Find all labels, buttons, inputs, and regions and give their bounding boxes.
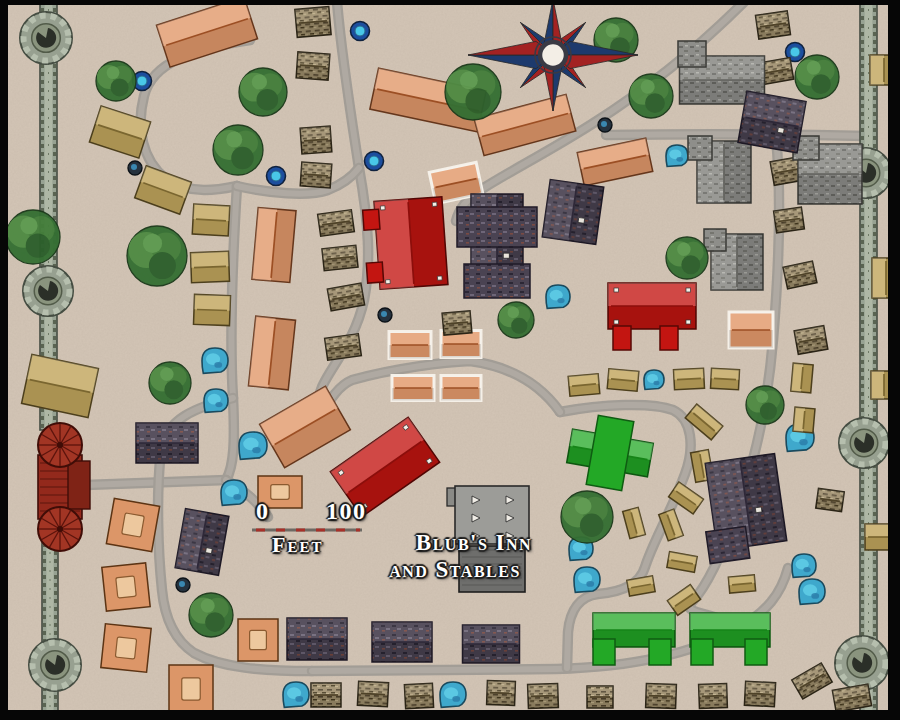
pond-shade: [557, 298, 564, 303]
building-slate: [738, 91, 806, 153]
place-name-line2: and Stables: [348, 558, 562, 581]
tree-highlight: [508, 307, 520, 319]
cistern-water: [381, 311, 387, 317]
roof-shade: [392, 388, 434, 401]
roof-light: [136, 423, 198, 443]
gatehouse-keep: [38, 423, 90, 551]
tree-highlight: [201, 599, 215, 613]
building-thatch: [774, 207, 805, 233]
roof-shade: [729, 330, 773, 348]
wall-tower: [20, 12, 72, 64]
roof-ridge: [490, 693, 512, 694]
tree-highlight: [807, 61, 821, 75]
pond: [202, 348, 228, 373]
pond-shade: [295, 696, 303, 702]
roof-light: [372, 622, 432, 642]
wall-tower: [23, 266, 73, 316]
tree: [666, 237, 708, 279]
pond: [221, 480, 247, 505]
building-thatch: [760, 58, 793, 85]
pond-shade: [215, 402, 222, 407]
tree-highlight: [252, 74, 267, 89]
chimney: [432, 202, 437, 206]
cistern-water: [179, 581, 185, 587]
cistern: [378, 308, 392, 322]
building-thatch: [646, 683, 677, 708]
roof-light: [872, 258, 886, 298]
roof-light: [487, 681, 515, 694]
tree-tuft: [205, 612, 225, 632]
well: [365, 152, 384, 171]
roof-light: [441, 376, 481, 389]
roof-light: [528, 683, 558, 696]
tree-highlight: [641, 80, 655, 94]
building-thatch: [487, 681, 516, 706]
building-barn: [729, 312, 773, 348]
building-tan: [193, 294, 230, 325]
well-water: [137, 76, 147, 86]
building-stone: [704, 229, 763, 290]
pond-shade: [580, 550, 587, 555]
roof-shade: [192, 219, 229, 236]
building-barn: [392, 376, 434, 401]
building-thatch: [296, 52, 330, 80]
tree: [445, 64, 501, 120]
tree-tuft: [111, 78, 129, 96]
tree-tuft: [164, 380, 183, 399]
roof-shade: [724, 141, 751, 203]
tree-tuft: [26, 233, 50, 257]
roof-wing: [678, 41, 706, 67]
pond: [239, 432, 267, 459]
building-tan: [793, 407, 815, 433]
roof-shade: [528, 695, 558, 708]
building-thatch: [816, 488, 845, 511]
scale-zero-label: 0: [256, 499, 270, 523]
building-tan: [607, 369, 639, 392]
roof-ridge: [531, 696, 555, 697]
building-thatch: [587, 686, 613, 708]
roof-shade: [389, 345, 431, 359]
tree-tuft: [465, 88, 490, 113]
tree-tuft: [645, 93, 665, 113]
pond: [792, 554, 816, 577]
tree: [629, 74, 673, 118]
roof-light: [729, 312, 773, 330]
tree: [189, 593, 233, 637]
door-mark: [503, 253, 509, 258]
building-barn: [441, 376, 481, 401]
roof-wing: [366, 262, 383, 283]
city-wall: [860, 0, 877, 712]
tree: [96, 61, 136, 101]
roof-light: [593, 613, 675, 630]
roof-wing: [363, 209, 380, 230]
cistern: [176, 578, 190, 592]
pond-shade: [811, 593, 819, 599]
courtyard: [116, 576, 136, 598]
wall-tower: [839, 418, 889, 468]
tree: [149, 362, 191, 404]
building-court: [102, 563, 150, 611]
roof-light: [871, 371, 884, 399]
pond-shade: [252, 447, 260, 453]
roof-light: [193, 204, 230, 221]
building-tan: [710, 368, 739, 389]
building-slate: [463, 625, 520, 663]
tree-tuft: [257, 89, 279, 111]
building-thatch: [357, 681, 388, 707]
chimney: [437, 276, 442, 280]
roof-light: [463, 625, 520, 644]
roof-wing: [688, 136, 712, 160]
roof-shade: [587, 697, 613, 708]
building-thatch: [755, 11, 790, 39]
building-thatch: [318, 210, 355, 237]
frame-top: [0, 0, 900, 5]
building-court: [169, 665, 213, 713]
roof-shade: [737, 234, 763, 290]
pond-shade: [233, 494, 241, 500]
building-tan: [190, 251, 229, 282]
tree-tuft: [231, 147, 254, 170]
chimney: [386, 280, 391, 284]
pond: [799, 579, 825, 604]
roof-ridge: [194, 266, 226, 267]
roof-light: [690, 613, 770, 630]
cistern-water: [131, 164, 137, 170]
tree-tuft: [580, 514, 603, 537]
map-layers: [0, 0, 900, 720]
building-orange: [252, 207, 296, 282]
door-mark: [755, 507, 762, 513]
roof-shade: [191, 266, 230, 282]
building-tan: [192, 204, 230, 236]
roof-light: [699, 684, 727, 697]
tree-tuft: [811, 74, 831, 94]
roof-shade: [463, 644, 520, 663]
well-water: [355, 26, 365, 36]
pond-shade: [452, 696, 460, 702]
cistern: [598, 118, 612, 132]
pond: [283, 682, 309, 707]
cistern-water: [601, 121, 607, 127]
tree: [239, 68, 287, 116]
tree-tuft: [511, 318, 527, 334]
building-tan: [568, 374, 600, 397]
roof-light: [389, 332, 431, 346]
roof-ridge: [649, 696, 673, 697]
building-court: [106, 498, 159, 551]
roof-shade: [441, 388, 481, 401]
roof-shade: [699, 696, 727, 709]
chimney: [686, 288, 691, 292]
tree: [213, 125, 263, 175]
building-tan: [728, 575, 755, 593]
courtyard: [250, 630, 267, 649]
building-orange: [248, 316, 295, 390]
tree: [6, 210, 60, 264]
roof-shade: [287, 639, 347, 660]
building-tan: [673, 368, 704, 390]
tree-tuft: [149, 252, 176, 279]
building-tan: [627, 576, 655, 596]
building-thatch: [794, 326, 828, 355]
wall-tower: [835, 636, 889, 690]
roof-ridge: [408, 695, 430, 696]
chimney: [614, 288, 619, 292]
door-mark: [778, 127, 785, 133]
tower-peak: [57, 442, 63, 448]
keep-annex: [68, 461, 90, 509]
roof-shade: [798, 174, 862, 204]
pond: [666, 145, 688, 166]
roof-wing: [706, 526, 750, 563]
tree-highlight: [226, 132, 242, 148]
pond: [204, 389, 228, 412]
tree-highlight: [575, 498, 592, 515]
roof-wing: [593, 639, 615, 665]
roof-shade: [487, 693, 515, 706]
cistern: [128, 161, 142, 175]
door-mark: [205, 548, 212, 554]
door-mark: [578, 217, 585, 223]
roof-wing: [704, 229, 726, 251]
building-slate: [542, 180, 604, 245]
building-thatch: [325, 334, 362, 361]
pond-shade: [654, 381, 660, 385]
roof-wing: [660, 326, 678, 350]
roof-light: [587, 686, 613, 697]
road-surface: [606, 134, 866, 136]
building-thatch: [311, 683, 341, 707]
frame-right: [888, 0, 900, 720]
tree-tuft: [760, 403, 777, 420]
building-stone: [688, 136, 751, 203]
building-stone: [793, 136, 862, 204]
building-thatch: [528, 683, 559, 708]
well-water: [271, 171, 281, 181]
well-water: [369, 156, 379, 166]
building-tan: [791, 363, 813, 393]
chimney: [380, 206, 385, 210]
tree-highlight: [677, 242, 690, 255]
tower-peak: [57, 526, 63, 532]
building-court: [238, 619, 278, 661]
roof-light: [194, 294, 231, 310]
frame-bottom: [0, 710, 900, 720]
courtyard: [182, 678, 200, 700]
courtyard: [115, 637, 136, 659]
tree-highlight: [606, 24, 620, 38]
roof-shade: [193, 309, 230, 325]
roof-ridge: [714, 378, 736, 379]
building-thatch: [322, 245, 358, 270]
tree: [746, 386, 784, 424]
place-name-line1: Blub's Inn: [386, 531, 562, 554]
scale-unit-label: Feet: [272, 534, 323, 556]
roof-wing: [691, 639, 713, 665]
well-water: [790, 47, 800, 57]
roof-shade: [311, 695, 341, 707]
tree-highlight: [756, 391, 768, 403]
chimney: [686, 320, 691, 324]
building-slate: [287, 618, 347, 660]
tree-tuft: [681, 255, 700, 274]
building-slate: [136, 423, 198, 463]
map-canvas: [0, 0, 900, 720]
tree-highlight: [143, 234, 162, 253]
wall-tower: [29, 639, 81, 691]
courtyard: [271, 485, 289, 500]
tree: [498, 302, 534, 338]
well: [267, 167, 286, 186]
roof-shade: [441, 344, 481, 358]
building-thatch: [300, 162, 332, 188]
building-thatch: [699, 684, 728, 709]
building-slate: [175, 509, 229, 576]
pond-shade: [214, 362, 222, 368]
town-map-screenshot: 0 100 Feet Blub's Inn and Stables: [0, 0, 900, 720]
building-slate: [457, 194, 537, 298]
pond-shade: [586, 581, 594, 587]
compass-hub: [540, 42, 566, 68]
building-barn: [389, 332, 431, 359]
roof-shade: [646, 695, 676, 708]
roof-light: [646, 683, 676, 696]
pond: [440, 682, 466, 707]
chimney: [614, 320, 619, 324]
pond-shade: [676, 157, 683, 162]
tree: [561, 491, 613, 543]
building-slate: [372, 622, 432, 662]
building-thatch: [295, 7, 331, 38]
tree-highlight: [160, 367, 173, 380]
pond: [574, 567, 600, 592]
roof-light: [608, 283, 696, 306]
building-court: [101, 624, 151, 673]
building-thatch: [744, 681, 775, 707]
roof-light: [311, 683, 341, 695]
tree: [795, 55, 839, 99]
frame-left: [0, 0, 8, 720]
tree-highlight: [107, 66, 120, 79]
roof-light: [287, 618, 347, 639]
roof-ridge: [702, 696, 724, 697]
roof-ridge: [197, 309, 227, 310]
pond: [546, 285, 570, 308]
tree-highlight: [460, 71, 478, 89]
roof-wing: [649, 639, 671, 665]
roof-wing: [464, 264, 530, 298]
pond: [644, 370, 664, 390]
building-thatch: [404, 683, 433, 708]
tree-highlight: [20, 217, 37, 234]
pond-shade: [803, 567, 810, 572]
roof-wing: [457, 207, 537, 247]
roof-light: [190, 251, 229, 267]
courtyard: [122, 513, 145, 537]
roof-shade: [372, 642, 432, 662]
roof-light: [870, 55, 884, 85]
pond-shade: [799, 439, 807, 445]
tree: [127, 226, 187, 286]
roof-light: [392, 376, 434, 389]
building-thatch: [300, 126, 332, 154]
well: [351, 22, 370, 41]
building-thatch: [442, 311, 472, 335]
roof-wing: [613, 326, 631, 350]
scale-hundred-label: 100: [326, 499, 367, 523]
roof-wing: [745, 639, 767, 665]
roof-shade: [136, 443, 198, 463]
